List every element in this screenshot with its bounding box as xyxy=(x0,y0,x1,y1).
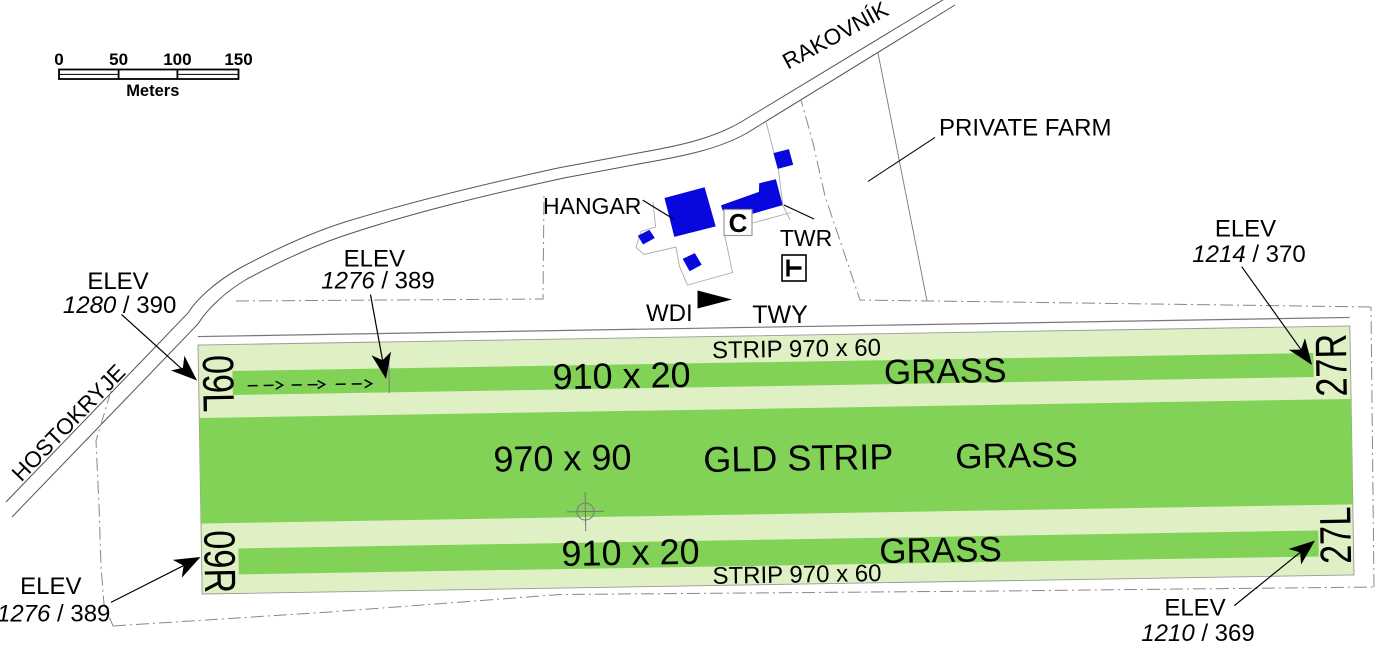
svg-text:HANGAR: HANGAR xyxy=(543,193,641,219)
svg-text:STRIP 970 x 60: STRIP 970 x 60 xyxy=(712,334,881,364)
svg-text:ELEV: ELEV xyxy=(1164,595,1225,622)
svg-text:0: 0 xyxy=(54,50,63,69)
svg-text:Meters: Meters xyxy=(126,82,179,100)
svg-text:WDI: WDI xyxy=(646,300,693,327)
svg-text:GRASS: GRASS xyxy=(879,530,1002,571)
svg-text:09L: 09L xyxy=(193,355,243,413)
svg-text:100: 100 xyxy=(163,50,191,69)
svg-text:1276 / 389: 1276 / 389 xyxy=(0,601,110,628)
svg-text:ELEV: ELEV xyxy=(20,573,81,600)
svg-text:STRIP 970 x 60: STRIP 970 x 60 xyxy=(712,560,881,590)
svg-text:PRIVATE FARM: PRIVATE FARM xyxy=(939,115,1111,142)
svg-text:GRASS: GRASS xyxy=(955,435,1078,476)
svg-text:1276 / 389: 1276 / 389 xyxy=(321,268,434,295)
svg-text:27R: 27R xyxy=(1307,333,1357,397)
svg-text:970 x 90: 970 x 90 xyxy=(493,436,632,479)
svg-text:27L: 27L xyxy=(1311,506,1361,564)
svg-text:910 x 20: 910 x 20 xyxy=(561,531,700,574)
svg-text:ELEV: ELEV xyxy=(1215,216,1276,243)
svg-text:910 x 20: 910 x 20 xyxy=(552,354,691,397)
svg-text:ELEV: ELEV xyxy=(87,268,148,295)
svg-text:50: 50 xyxy=(109,50,128,69)
svg-text:TWY: TWY xyxy=(752,301,808,329)
svg-text:C: C xyxy=(729,208,748,238)
svg-text:GLD STRIP: GLD STRIP xyxy=(703,436,894,480)
svg-text:150: 150 xyxy=(224,50,252,69)
svg-text:TWR: TWR xyxy=(780,225,832,251)
svg-text:GRASS: GRASS xyxy=(884,351,1007,392)
svg-text:1214 / 370: 1214 / 370 xyxy=(1192,241,1305,268)
svg-text:1280 / 390: 1280 / 390 xyxy=(63,292,176,319)
svg-text:1210 / 369: 1210 / 369 xyxy=(1141,620,1254,645)
svg-text:09R: 09R xyxy=(194,530,244,594)
